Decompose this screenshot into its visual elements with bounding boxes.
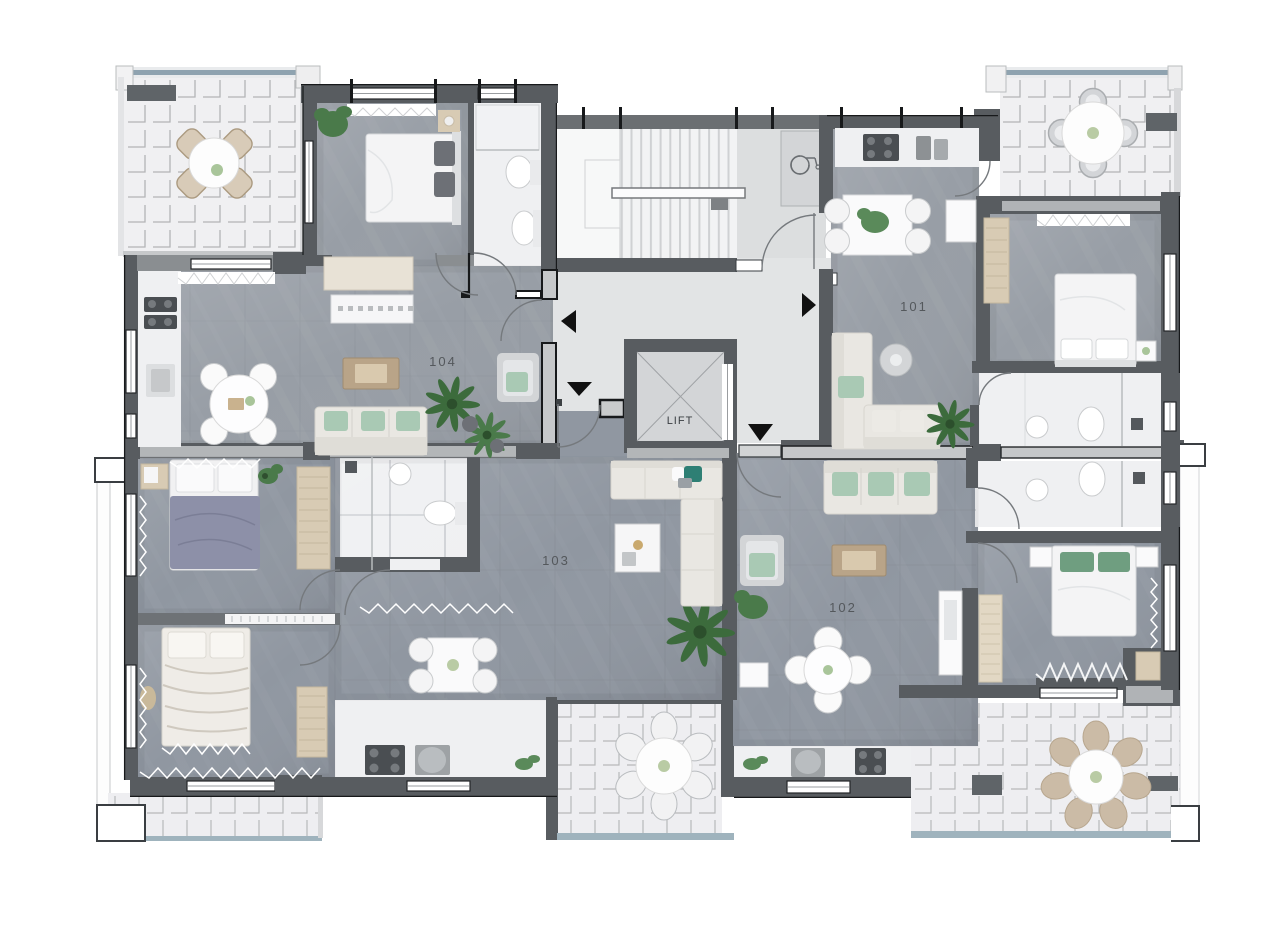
svg-text:104: 104: [429, 354, 457, 369]
svg-text:101: 101: [900, 299, 928, 314]
svg-text:103: 103: [542, 553, 570, 568]
svg-text:LIFT: LIFT: [667, 415, 694, 427]
svg-text:102: 102: [829, 600, 857, 615]
